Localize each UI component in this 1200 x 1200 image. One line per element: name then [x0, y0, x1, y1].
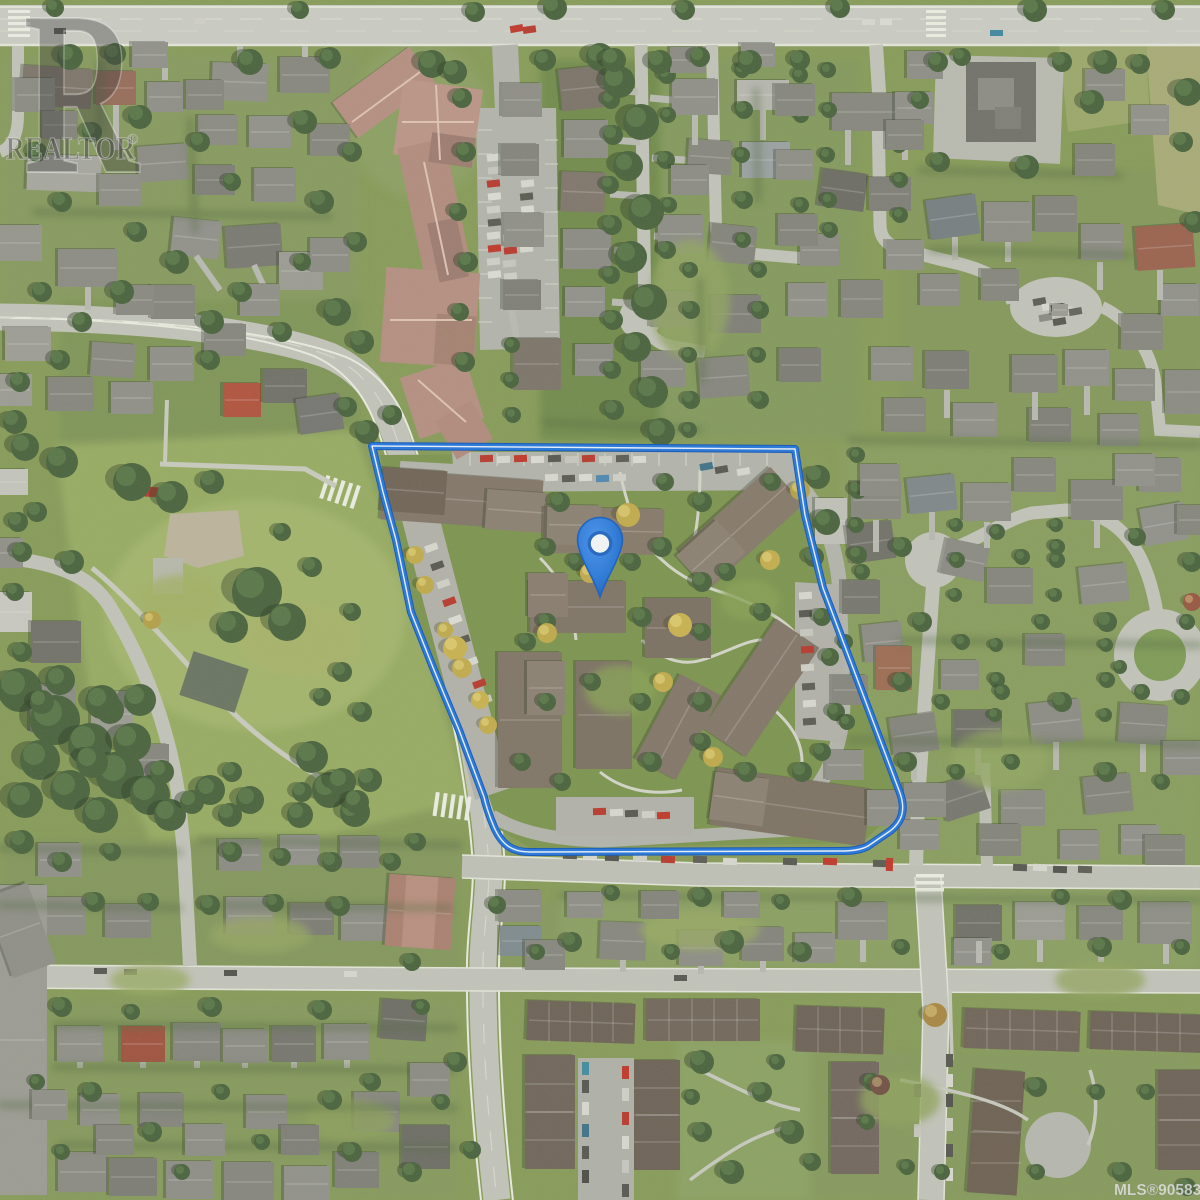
svg-text:®: ® — [127, 132, 138, 148]
svg-text:REALTOR: REALTOR — [6, 132, 136, 167]
svg-text:MLS®905830: MLS®905830 — [1114, 1182, 1200, 1199]
svg-text:R: R — [23, 0, 140, 223]
